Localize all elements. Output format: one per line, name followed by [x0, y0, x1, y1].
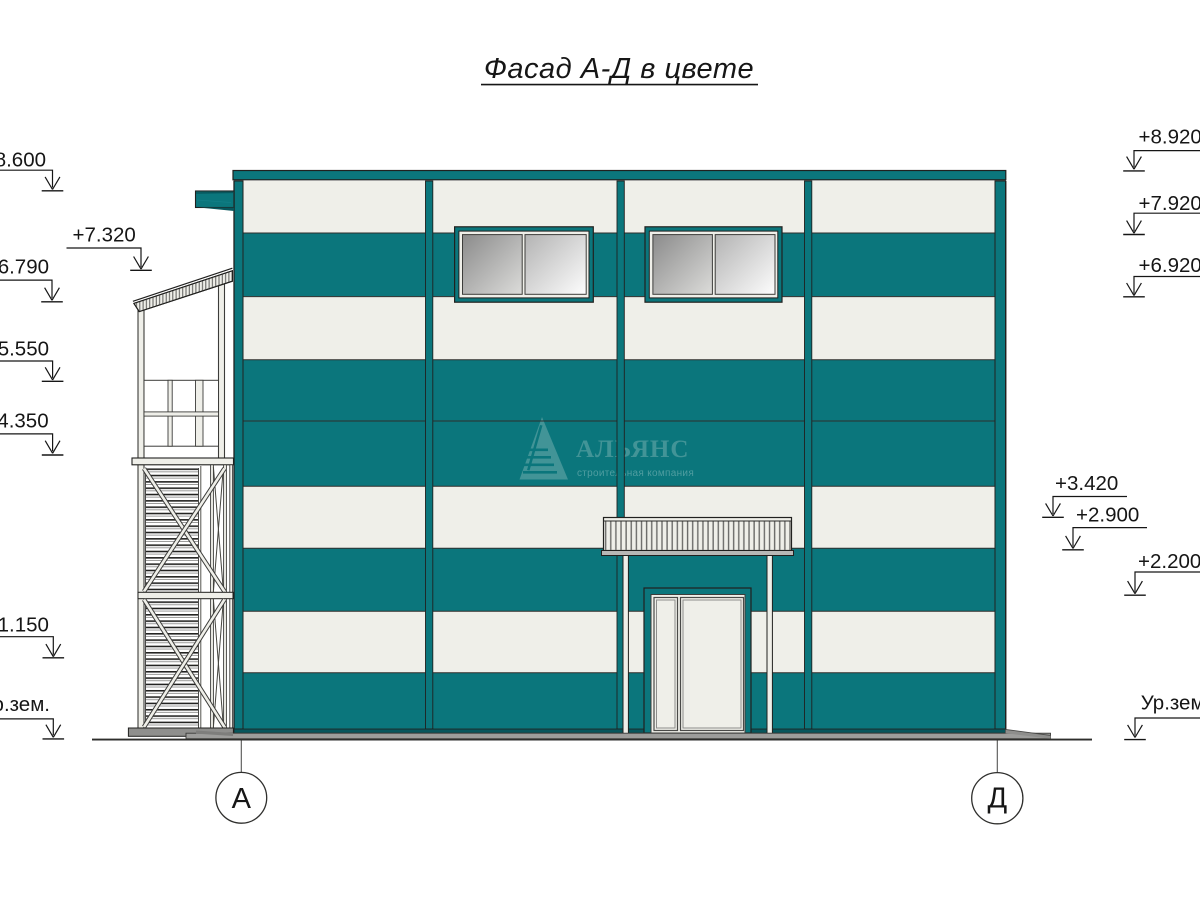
svg-text:+1.150: +1.150 [0, 614, 49, 637]
svg-text:+8.920: +8.920 [1139, 126, 1200, 149]
svg-text:Фасад А-Д в цвете: Фасад А-Д в цвете [484, 53, 754, 85]
svg-text:+6.920: +6.920 [1139, 254, 1200, 277]
svg-text:А: А [232, 783, 252, 815]
svg-text:+4.350: +4.350 [0, 410, 49, 433]
svg-text:строительная компания: строительная компания [577, 468, 694, 479]
svg-text:+2.900: +2.900 [1076, 503, 1139, 526]
svg-text:Д: Д [987, 783, 1007, 815]
svg-text:Ур.зем.: Ур.зем. [1141, 691, 1200, 714]
svg-text:Ур.зем.: Ур.зем. [0, 693, 50, 716]
svg-text:+5.550: +5.550 [0, 337, 49, 360]
svg-text:+7.920: +7.920 [1139, 192, 1200, 215]
svg-text:+7.320: +7.320 [73, 224, 136, 247]
svg-text:+8.600: +8.600 [0, 149, 46, 172]
svg-text:АЛЬЯНС: АЛЬЯНС [576, 436, 689, 463]
svg-text:+3.420: +3.420 [1055, 472, 1118, 495]
svg-text:+2.200: +2.200 [1138, 550, 1200, 573]
svg-text:+6.790: +6.790 [0, 255, 49, 278]
